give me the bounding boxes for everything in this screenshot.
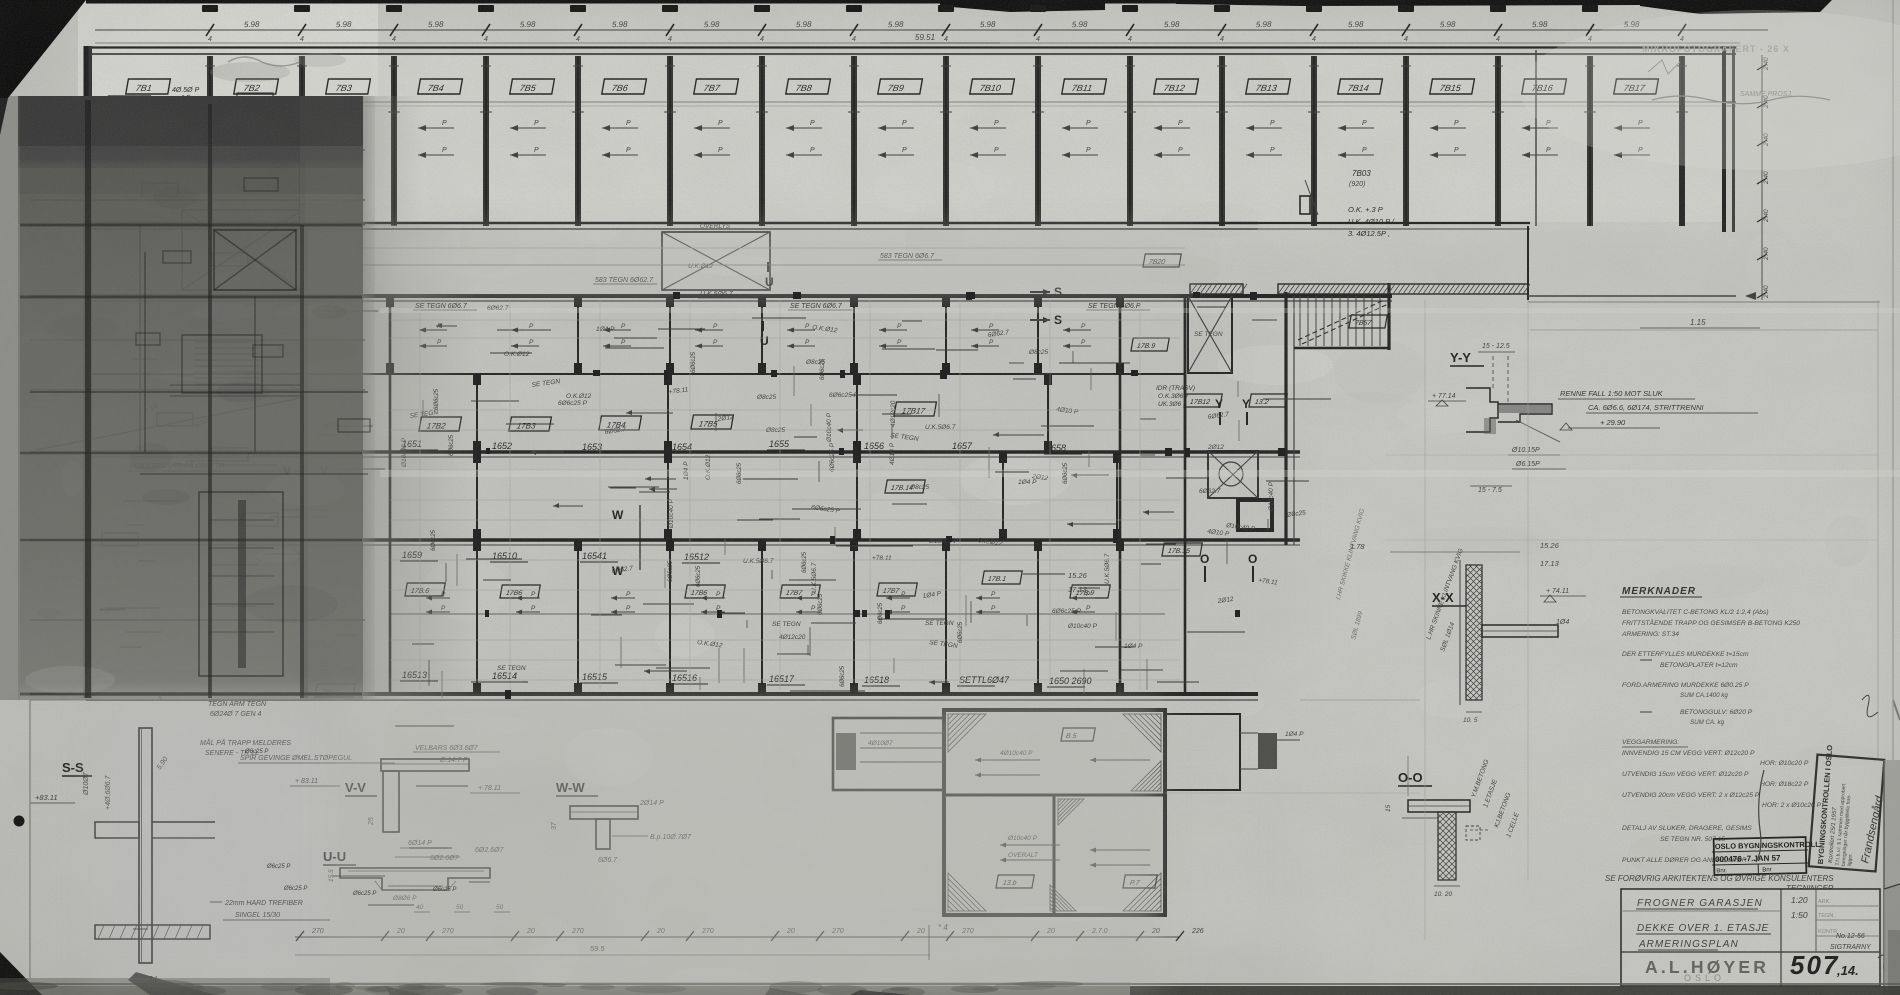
svg-text:6Ø6c25: 6Ø6c25 xyxy=(840,665,846,687)
svg-text:6Ø6c25: 6Ø6c25 xyxy=(668,560,674,582)
svg-text:6Ø6c25: 6Ø6c25 xyxy=(434,388,440,410)
svg-text:6Ø6c25: 6Ø6c25 xyxy=(737,462,743,484)
svg-text:6Ø6c25: 6Ø6c25 xyxy=(820,358,826,380)
svg-text:6Ø6c25: 6Ø6c25 xyxy=(449,434,455,456)
svg-text:Ø6c25 P: Ø6c25 P xyxy=(432,887,456,893)
svg-text:Ø6c25 P: Ø6c25 P xyxy=(352,891,376,897)
svg-text:6Ø6c25: 6Ø6c25 xyxy=(958,621,964,643)
svg-text:6Ø6c25: 6Ø6c25 xyxy=(802,551,808,573)
svg-text:Ø6c25 P: Ø6c25 P xyxy=(283,886,307,892)
svg-text:6Ø6c25: 6Ø6c25 xyxy=(1063,462,1069,484)
svg-text:6Ø6c25: 6Ø6c25 xyxy=(818,593,824,615)
svg-text:6Ø6c25: 6Ø6c25 xyxy=(691,351,697,373)
svg-text:6Ø6c25: 6Ø6c25 xyxy=(878,602,884,624)
svg-text:6Ø6c25: 6Ø6c25 xyxy=(696,565,702,587)
svg-text:6Ø6c25: 6Ø6c25 xyxy=(431,529,437,551)
svg-text:Ø6c25 P: Ø6c25 P xyxy=(266,864,290,870)
svg-text:Ø6c25 P: Ø6c25 P xyxy=(244,749,268,755)
